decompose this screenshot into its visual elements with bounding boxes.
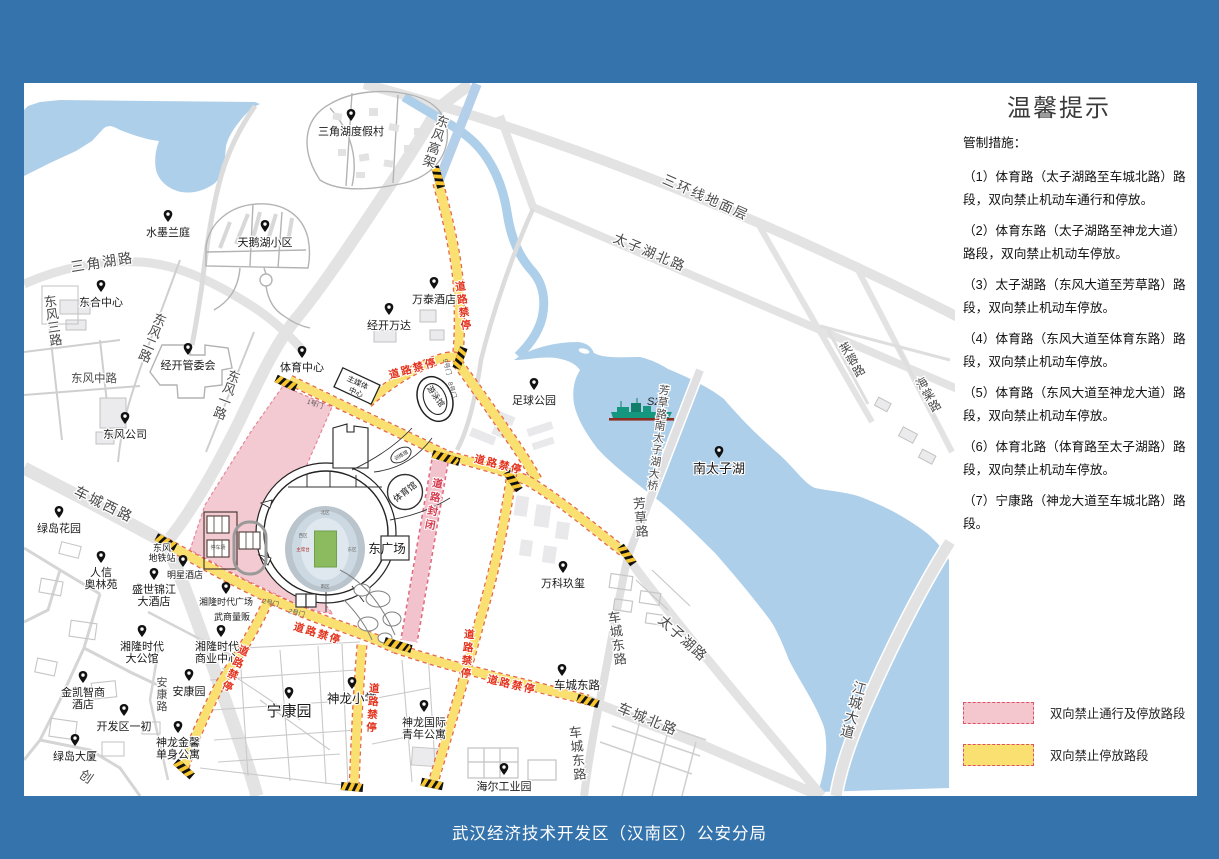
svg-text:绿岛花园: 绿岛花园 bbox=[37, 521, 81, 535]
svg-text:青年公寓: 青年公寓 bbox=[402, 727, 446, 741]
svg-text:神龙金馨: 神龙金馨 bbox=[156, 735, 200, 749]
svg-text:神龙国际: 神龙国际 bbox=[402, 715, 446, 729]
svg-text:明星酒店: 明星酒店 bbox=[167, 569, 203, 580]
svg-text:酒店: 酒店 bbox=[72, 697, 94, 711]
svg-text:车城东路: 车城东路 bbox=[568, 724, 587, 782]
svg-text:宁康园: 宁康园 bbox=[266, 703, 311, 720]
svg-text:大公馆: 大公馆 bbox=[126, 651, 159, 665]
svg-text:道路禁停: 道路禁停 bbox=[486, 673, 538, 697]
svg-text:经开万达: 经开万达 bbox=[367, 319, 411, 332]
svg-text:主席台: 主席台 bbox=[296, 546, 310, 553]
svg-text:武商量贩: 武商量贩 bbox=[214, 611, 250, 622]
svg-text:三角湖路: 三角湖路 bbox=[69, 249, 135, 275]
svg-text:太子湖路: 太子湖路 bbox=[655, 612, 710, 664]
svg-text:车城东路: 车城东路 bbox=[554, 678, 600, 692]
svg-text:经开管委会: 经开管委会 bbox=[161, 358, 216, 372]
svg-text:水墨兰庭: 水墨兰庭 bbox=[146, 225, 190, 239]
svg-text:湘隆时代广场: 湘隆时代广场 bbox=[199, 596, 253, 607]
svg-text:万科玖玺: 万科玖玺 bbox=[541, 576, 585, 590]
svg-text:北区: 北区 bbox=[321, 509, 330, 516]
svg-text:湘隆时代: 湘隆时代 bbox=[120, 639, 164, 653]
svg-text:东合中心: 东合中心 bbox=[79, 295, 123, 309]
svg-text:安康路: 安康路 bbox=[157, 675, 168, 713]
svg-text:体育中心: 体育中心 bbox=[280, 360, 324, 374]
svg-text:天鹅湖小区: 天鹅湖小区 bbox=[238, 235, 293, 249]
svg-text:绿岛大厦: 绿岛大厦 bbox=[53, 749, 97, 763]
svg-text:太子湖北路: 太子湖北路 bbox=[611, 230, 688, 274]
svg-text:单身公寓: 单身公寓 bbox=[156, 747, 200, 761]
svg-text:金凯智商: 金凯智商 bbox=[61, 685, 105, 699]
svg-text:海尔工业园: 海尔工业园 bbox=[477, 779, 532, 793]
svg-text:东广场: 东广场 bbox=[368, 542, 406, 556]
svg-text:安康园: 安康园 bbox=[173, 684, 206, 698]
svg-text:奥林苑: 奥林苑 bbox=[85, 577, 118, 591]
svg-text:南太子湖: 南太子湖 bbox=[693, 461, 745, 476]
svg-text:东风中路: 东风中路 bbox=[71, 371, 117, 385]
svg-text:道路禁停: 道路禁停 bbox=[365, 682, 381, 735]
svg-text:三环线地面层: 三环线地面层 bbox=[660, 172, 751, 224]
svg-text:东风: 东风 bbox=[153, 542, 171, 553]
svg-text:东风公司: 东风公司 bbox=[103, 428, 147, 441]
svg-text:停车场: 停车场 bbox=[210, 544, 225, 551]
svg-text:开发区一初: 开发区一初 bbox=[97, 719, 152, 733]
svg-text:人信: 人信 bbox=[90, 566, 112, 579]
svg-text:创: 创 bbox=[77, 767, 96, 787]
svg-text:南区: 南区 bbox=[321, 583, 330, 589]
svg-text:大酒店: 大酒店 bbox=[138, 594, 171, 608]
svg-text:盛世锦江: 盛世锦江 bbox=[132, 582, 176, 596]
svg-text:万泰酒店: 万泰酒店 bbox=[412, 292, 456, 306]
svg-text:湘隆时代: 湘隆时代 bbox=[195, 639, 239, 653]
svg-text:地铁站: 地铁站 bbox=[148, 552, 175, 563]
svg-text:东区: 东区 bbox=[348, 546, 357, 552]
svg-text:三角湖度假村: 三角湖度假村 bbox=[318, 124, 384, 138]
svg-text:足球公园: 足球公园 bbox=[512, 393, 556, 407]
